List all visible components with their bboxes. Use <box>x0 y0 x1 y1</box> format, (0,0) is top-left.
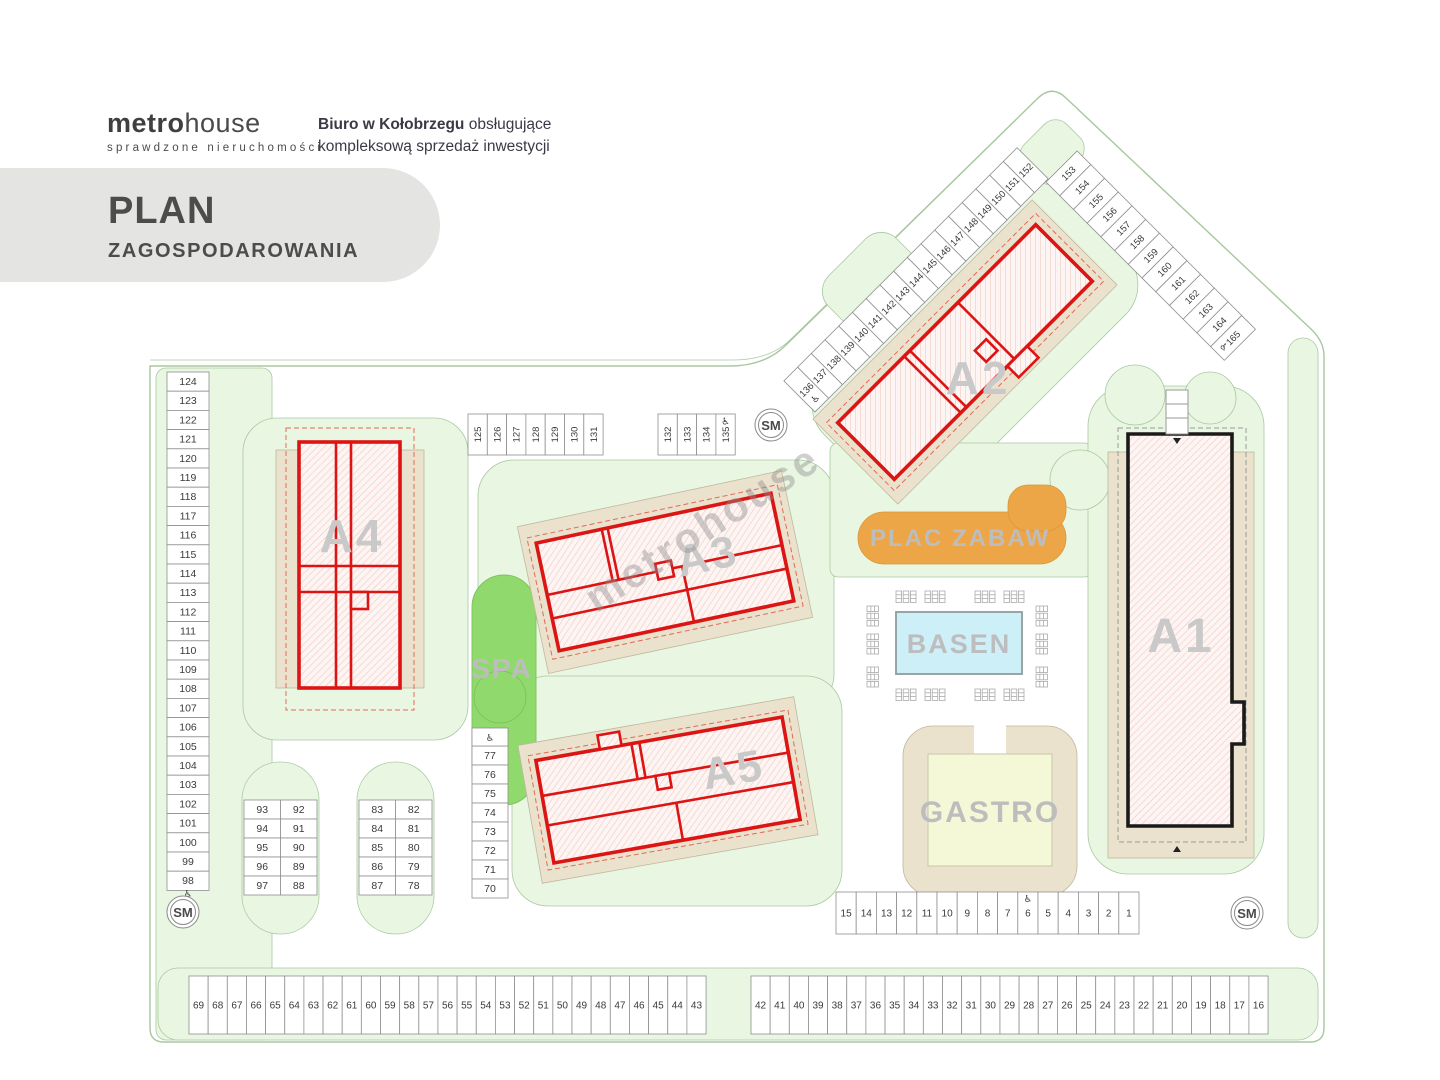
parking-stall-number: 119 <box>180 472 197 484</box>
parking-stall-number: 29 <box>1004 1000 1016 1011</box>
parking-stall-number: 60 <box>365 1000 377 1011</box>
parking-stall-number: 123 <box>179 395 197 407</box>
pool-label: BASEN <box>907 629 1012 659</box>
parking-stall-number: 89 <box>293 861 305 873</box>
parking-stall-number: 115 <box>180 549 197 561</box>
parking-stall-number: 80 <box>408 842 420 854</box>
lounger-icon <box>867 606 879 612</box>
parking-stall-number: 86 <box>371 861 383 873</box>
lounger-icon <box>867 613 879 619</box>
building-a1-label: A1 <box>1147 610 1214 663</box>
parking-stall-number: 111 <box>180 626 196 638</box>
parking-stall-number: 103 <box>179 779 197 791</box>
parking-stall-number: 9 <box>965 908 971 919</box>
disabled-parking-icon: ♿ <box>721 417 730 428</box>
parking-stall-number: 19 <box>1195 1000 1207 1011</box>
sm-label: SM <box>761 418 781 433</box>
parking-stall-number: 44 <box>672 1000 684 1011</box>
building-a1: A1 <box>1108 390 1254 858</box>
parking-row-125-131: 125126127128129130131 <box>468 414 603 455</box>
parking-stall-number: 98 <box>182 875 194 887</box>
parking-stall-number: 112 <box>180 606 197 618</box>
lounger-icon <box>903 591 909 603</box>
lounger-icon <box>1036 613 1048 619</box>
parking-stall-number: 81 <box>408 823 420 835</box>
parking-stall-number: 6 <box>1025 908 1031 919</box>
parking-stall-number: 120 <box>179 453 197 465</box>
parking-stall-number: 35 <box>889 1000 901 1011</box>
parking-stall-number: 58 <box>404 1000 416 1011</box>
parking-stall-number: 63 <box>308 1000 320 1011</box>
parking-stall-number: 92 <box>293 804 305 816</box>
parking-stall-number: 31 <box>966 1000 978 1011</box>
parking-stall-number: 134 <box>702 427 713 443</box>
lounger-icon <box>1011 689 1017 701</box>
parking-stall-number: 66 <box>250 1000 262 1011</box>
lounger-icon <box>1036 674 1048 680</box>
playground-label: PLAC ZABAW <box>870 525 1050 552</box>
parking-stall-number: 16 <box>1253 1000 1265 1011</box>
parking-stall-number: 37 <box>851 1000 863 1011</box>
parking-stall-number: 85 <box>371 842 383 854</box>
lounger-icon <box>939 591 945 603</box>
lounger-icon <box>939 689 945 701</box>
lounger-icon <box>1036 606 1048 612</box>
disabled-parking-icon: ♿ <box>486 733 495 744</box>
parking-stall-number: 45 <box>653 1000 665 1011</box>
parking-stall-number: 110 <box>180 645 197 657</box>
parking-row-132-135: 132133134135♿ <box>658 414 735 455</box>
parking-stall-number: 23 <box>1119 1000 1131 1011</box>
parking-stall-number: 14 <box>861 908 873 919</box>
lounger-icon <box>1036 681 1048 687</box>
building-a4-label: A4 <box>320 510 385 562</box>
parking-stall-number: 13 <box>881 908 893 919</box>
parking-stall-number: 2 <box>1106 908 1112 919</box>
parking-stall-number: 127 <box>512 427 523 443</box>
parking-stall-number: 93 <box>256 804 268 816</box>
parking-stall-number: 27 <box>1042 1000 1054 1011</box>
parking-stall-number: 57 <box>423 1000 435 1011</box>
parking-stall-number: 84 <box>371 823 383 835</box>
pool-area: BASEN <box>867 591 1048 701</box>
parking-stall-number: 4 <box>1066 908 1072 919</box>
lounger-icon <box>1011 591 1017 603</box>
lounger-icon <box>1018 591 1024 603</box>
parking-stall-number: 121 <box>179 434 197 446</box>
parking-stall-number: 113 <box>180 587 197 599</box>
parking-stall-number: 75 <box>484 788 496 800</box>
parking-stall-number: 78 <box>408 880 420 892</box>
parking-stall-number: 40 <box>793 1000 805 1011</box>
parking-stall-number: 48 <box>595 1000 607 1011</box>
parking-stall-number: 70 <box>484 883 496 895</box>
disabled-parking-icon: ♿ <box>1024 894 1033 905</box>
parking-stall-number: 91 <box>293 823 305 835</box>
parking-stall-number: 30 <box>985 1000 997 1011</box>
parking-stall-number: 1 <box>1126 908 1132 919</box>
disabled-parking-cell: ♿ <box>472 728 508 746</box>
parking-stall-number: 129 <box>550 427 561 443</box>
parking-stall-number: 109 <box>179 664 197 676</box>
lounger-icon <box>867 620 879 626</box>
parking-stall-number: 67 <box>231 1000 243 1011</box>
parking-stall-number: 56 <box>442 1000 454 1011</box>
tree <box>1105 365 1165 425</box>
parking-stall-number: 117 <box>180 510 197 522</box>
parking-stall-number: 5 <box>1045 908 1051 919</box>
gastro-area: GASTRO <box>903 724 1077 896</box>
parking-stall-number: 11 <box>922 908 933 919</box>
sm-marker: SM <box>755 409 787 441</box>
parking-stall-number: 38 <box>832 1000 844 1011</box>
parking-stall-number: 32 <box>947 1000 959 1011</box>
parking-stall-number: 43 <box>691 1000 703 1011</box>
lounger-icon <box>989 591 995 603</box>
lounger-icon <box>910 689 916 701</box>
parking-stall-number: 71 <box>484 864 496 876</box>
parking-stall-number: 100 <box>179 837 197 849</box>
parking-stall-number: 126 <box>492 427 503 443</box>
parking-stall-number: 135 <box>721 427 732 443</box>
lounger-icon <box>1036 620 1048 626</box>
parking-stall-number: 69 <box>193 1000 205 1011</box>
parking-stall-number: 82 <box>408 804 420 816</box>
parking-stall-number: 107 <box>179 702 197 714</box>
parking-stall-number: 104 <box>179 760 197 772</box>
parking-stall-number: 133 <box>682 427 693 443</box>
parking-stall-number: 105 <box>179 741 197 753</box>
lounger-icon <box>867 681 879 687</box>
parking-stall-number: 26 <box>1061 1000 1073 1011</box>
parking-island-93-88: 93929491959096899788 <box>244 800 317 895</box>
parking-stall-number: 128 <box>531 427 542 443</box>
sm-marker: SM <box>167 896 199 928</box>
parking-stall-number: 95 <box>256 842 268 854</box>
lounger-icon <box>1018 689 1024 701</box>
building-a2-label: A2 <box>946 352 1011 404</box>
parking-stall-number: 8 <box>985 908 991 919</box>
parking-stall-number: 94 <box>256 823 268 835</box>
parking-stall-number: 106 <box>179 722 197 734</box>
lounger-icon <box>1004 591 1010 603</box>
lounger-icon <box>1036 641 1048 647</box>
parking-stall-number: 76 <box>484 769 496 781</box>
parking-stall-number: 73 <box>484 826 496 838</box>
parking-stall-number: 114 <box>180 568 197 580</box>
lounger-icon <box>925 591 931 603</box>
parking-stall-number: 28 <box>1023 1000 1035 1011</box>
parking-stall-number: 131 <box>589 427 600 443</box>
sm-label: SM <box>173 905 193 920</box>
parking-stall-number: 61 <box>346 1000 358 1011</box>
lounger-icon <box>867 648 879 654</box>
building-a4: A4 <box>276 428 424 710</box>
parking-stall-number: 47 <box>614 1000 626 1011</box>
parking-island-83-78: 83828481858086798778 <box>359 800 432 895</box>
parking-stall-number: 22 <box>1138 1000 1150 1011</box>
lounger-icon <box>1036 667 1048 673</box>
parking-stall-number: 53 <box>499 1000 511 1011</box>
green-right-strip <box>1288 338 1318 938</box>
tree <box>1184 372 1236 424</box>
parking-stall-number: 87 <box>371 880 383 892</box>
parking-stall-number: 20 <box>1176 1000 1188 1011</box>
parking-stall-number: 64 <box>289 1000 301 1011</box>
parking-stall-number: 42 <box>755 1000 767 1011</box>
parking-stall-number: 34 <box>908 1000 920 1011</box>
parking-stall-number: 3 <box>1086 908 1092 919</box>
site-plan-page: metrohouse sprawdzone nieruchomości Biur… <box>0 0 1440 1080</box>
parking-stall-number: 54 <box>480 1000 492 1011</box>
parking-stall-number: 74 <box>484 807 496 819</box>
lounger-icon <box>910 591 916 603</box>
parking-stall-number: 25 <box>1081 1000 1093 1011</box>
parking-stall-number: 101 <box>179 818 197 830</box>
sm-label: SM <box>1237 906 1257 921</box>
parking-stall-number: 96 <box>256 861 268 873</box>
parking-stall-number: 77 <box>484 750 496 762</box>
parking-stall-number: 65 <box>270 1000 282 1011</box>
parking-stall-number: 62 <box>327 1000 339 1011</box>
parking-stall-number: 124 <box>179 376 197 388</box>
lounger-icon <box>989 689 995 701</box>
parking-stall-number: 55 <box>461 1000 473 1011</box>
lounger-icon <box>867 634 879 640</box>
parking-stall-number: 116 <box>180 530 197 542</box>
parking-stall-number: 41 <box>774 1000 786 1011</box>
lounger-icon <box>975 689 981 701</box>
parking-stall-number: 122 <box>179 414 197 426</box>
parking-stall-number: 88 <box>293 880 305 892</box>
parking-stall-number: 72 <box>484 845 496 857</box>
parking-stall-number: 125 <box>473 427 484 443</box>
parking-column-77-70: 7776757473727170 <box>472 746 508 898</box>
lounger-icon <box>867 641 879 647</box>
parking-stall-number: 97 <box>256 880 268 892</box>
site-plan: SPA A4 A2 <box>0 0 1440 1080</box>
parking-stall-number: 46 <box>633 1000 645 1011</box>
parking-stall-number: 7 <box>1005 908 1011 919</box>
lounger-icon <box>932 689 938 701</box>
lounger-icon <box>867 674 879 680</box>
lounger-icon <box>867 667 879 673</box>
parking-stall-number: 50 <box>557 1000 569 1011</box>
parking-stall-number: 108 <box>179 683 197 695</box>
lounger-icon <box>1036 648 1048 654</box>
parking-stall-number: 132 <box>663 427 674 443</box>
parking-row-69-43: 6968676665646362616059585756555453525150… <box>189 976 706 1034</box>
parking-row-42-16: 4241403938373635343332313029282726252423… <box>751 976 1268 1034</box>
parking-stall-number: 59 <box>385 1000 397 1011</box>
parking-stall-number: 51 <box>538 1000 550 1011</box>
parking-stall-number: 33 <box>927 1000 939 1011</box>
parking-stall-number: 130 <box>570 427 581 443</box>
parking-stall-number: 17 <box>1234 1000 1246 1011</box>
a1-entrance <box>1166 390 1188 434</box>
parking-stall-number: 24 <box>1100 1000 1112 1011</box>
parking-stall-number: 102 <box>179 798 197 810</box>
parking-stall-number: 21 <box>1157 1000 1169 1011</box>
lounger-icon <box>975 591 981 603</box>
lounger-icon <box>982 591 988 603</box>
parking-stall-number: 18 <box>1215 1000 1227 1011</box>
gastro-label: GASTRO <box>920 796 1060 829</box>
lounger-icon <box>1004 689 1010 701</box>
lounger-icon <box>903 689 909 701</box>
sm-marker: SM <box>1231 897 1263 929</box>
lounger-icon <box>932 591 938 603</box>
lounger-icon <box>896 591 902 603</box>
lounger-icon <box>896 689 902 701</box>
lounger-icon <box>1036 634 1048 640</box>
parking-stall-number: 118 <box>180 491 197 503</box>
parking-stall-number: 36 <box>870 1000 882 1011</box>
parking-stall-number: 52 <box>519 1000 531 1011</box>
parking-column-left: 1241231221211201191181171161151141131121… <box>167 372 209 900</box>
parking-stall-number: 83 <box>371 804 383 816</box>
parking-stall-number: 49 <box>576 1000 588 1011</box>
parking-stall-number: 79 <box>408 861 420 873</box>
parking-stall-number: 10 <box>942 908 954 919</box>
lounger-icon <box>982 689 988 701</box>
spa-label: SPA <box>471 653 533 684</box>
parking-stall-number: 39 <box>812 1000 824 1011</box>
parking-stall-number: 15 <box>841 908 853 919</box>
parking-stall-number: 12 <box>901 908 913 919</box>
parking-stall-number: 90 <box>293 842 305 854</box>
parking-stall-number: 99 <box>182 856 194 868</box>
parking-stall-number: 68 <box>212 1000 224 1011</box>
parking-row-15-1: 1514131211109876♿54321 <box>836 892 1139 934</box>
lounger-icon <box>925 689 931 701</box>
